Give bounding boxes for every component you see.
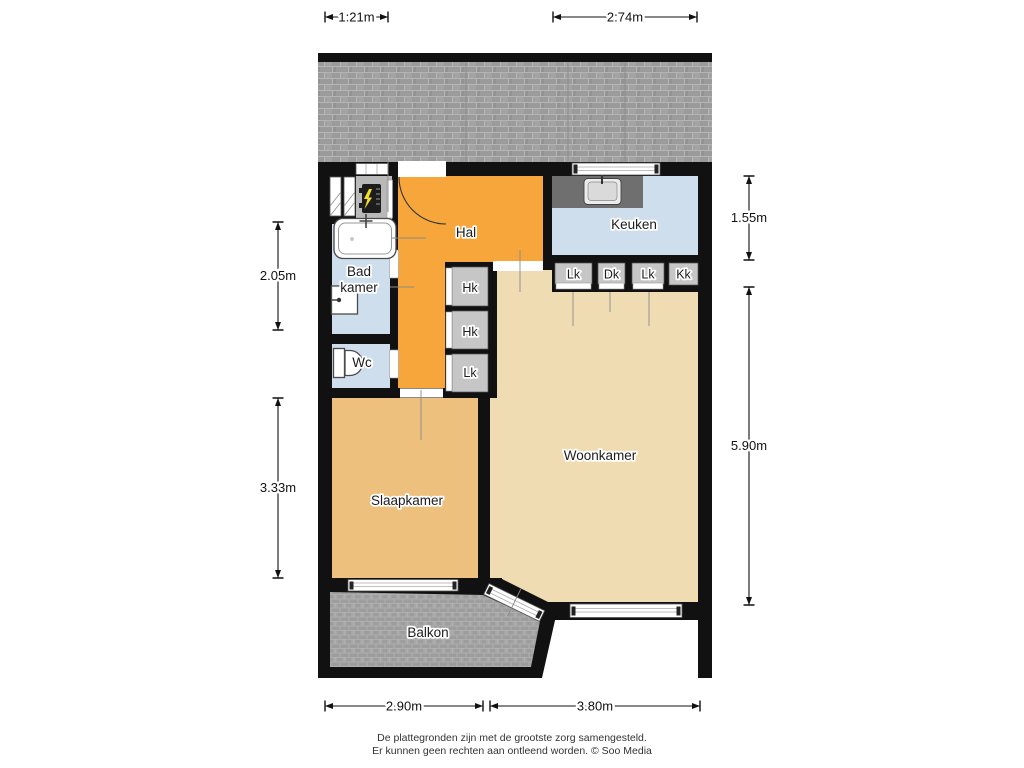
gallery-edge-bar <box>318 53 712 62</box>
wall <box>318 162 332 592</box>
entry-glass-pane <box>330 177 341 216</box>
closet-hk-top-label: Hk <box>462 281 478 295</box>
entry-side-window <box>356 164 388 175</box>
bathtub-drain <box>350 237 354 241</box>
floorplan-page: Hal Keuken Bad kamer Wc Slaapkamer Woonk… <box>0 0 1024 768</box>
dimension-left-bottom: 3.33m <box>260 398 296 578</box>
slaapkamer-label: Slaapkamer <box>371 493 444 508</box>
slaapkamer-window <box>348 580 458 592</box>
closet-lk-hal-label: Lk <box>463 366 477 380</box>
dimension-left-top: 2.05m <box>260 222 296 330</box>
gallery-tiles <box>318 62 712 162</box>
meter-closet <box>356 176 392 220</box>
entry-glass-pane <box>344 177 355 216</box>
front-door-opening <box>398 161 446 177</box>
dim-top-left-label: 1:21m <box>338 10 374 25</box>
dim-bottom-left-label: 2.90m <box>386 699 422 714</box>
balkon-label: Balkon <box>407 625 448 640</box>
badkamer-label-line1: Bad <box>347 264 371 279</box>
dim-right-top-label: 1.55m <box>731 210 767 225</box>
bathtub <box>334 219 396 259</box>
closet-hk-middle-label: Hk <box>462 325 478 339</box>
wc-label: Wc <box>352 355 372 370</box>
dim-right-bottom-label: 5.90m <box>731 438 767 453</box>
boiler-knob <box>359 188 362 193</box>
washbasin-tap <box>337 298 341 302</box>
toilet-tank <box>334 349 345 378</box>
woonkamer-window <box>570 604 682 618</box>
closet-lk1-label: Lk <box>567 268 581 282</box>
keuken-window <box>572 163 660 175</box>
dim-bottom-right-label: 3.80m <box>577 699 613 714</box>
gallery-walkway <box>318 53 712 162</box>
footer: De plattegronden zijn met de grootste zo… <box>372 732 652 757</box>
slaapkamer-door-opening <box>400 389 443 398</box>
closet-dk-label: Dk <box>604 268 620 282</box>
keuken-label: Keuken <box>611 217 657 232</box>
wall <box>698 162 712 678</box>
wc-door <box>390 350 399 378</box>
dimension-right-top: 1.55m <box>731 176 767 260</box>
footer-disclaimer-line1: De plattegronden zijn met de grootste zo… <box>377 732 647 744</box>
woonkamer-passage-opening <box>493 261 543 271</box>
dim-left-bottom-label: 3.33m <box>260 480 296 495</box>
footer-disclaimer-line2: Er kunnen geen rechten aan ontleend word… <box>372 745 652 757</box>
dim-left-top-label: 2.05m <box>260 268 296 283</box>
dimension-top-right: 2:74m <box>553 10 697 25</box>
dim-top-right-label: 2:74m <box>607 10 643 25</box>
woonkamer-label: Woonkamer <box>564 448 637 463</box>
dimension-right-bottom: 5.90m <box>731 287 767 605</box>
boiler-knob <box>359 203 362 208</box>
dimension-bottom-left: 2.90m <box>325 699 483 714</box>
closet-kk-label: Kk <box>676 268 691 282</box>
closet-lk2-label: Lk <box>641 268 655 282</box>
room-woonkamer-floor <box>486 270 698 606</box>
hal-label: Hal <box>456 225 476 240</box>
wall <box>478 396 490 580</box>
badkamer-label-line2: kamer <box>340 280 378 295</box>
wall <box>318 334 398 344</box>
dimension-top-left: 1:21m <box>325 10 388 25</box>
room-slaapkamer-floor <box>332 398 478 578</box>
dimension-bottom-right: 3.80m <box>490 699 700 714</box>
